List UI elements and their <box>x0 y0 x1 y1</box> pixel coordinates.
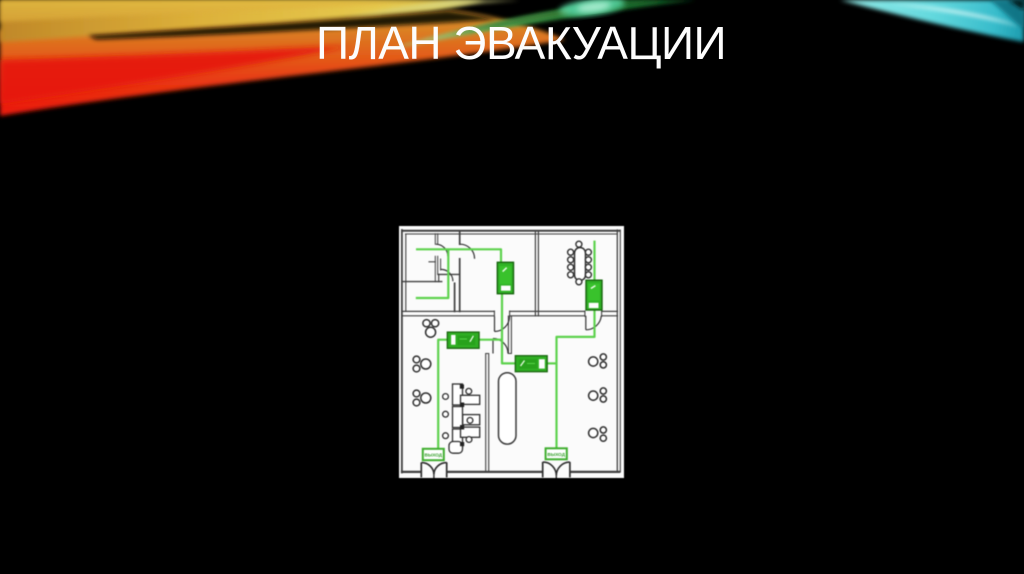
svg-text:ВЫХОД: ВЫХОД <box>547 452 565 457</box>
svg-text:ВЫХОД: ВЫХОД <box>425 453 443 458</box>
